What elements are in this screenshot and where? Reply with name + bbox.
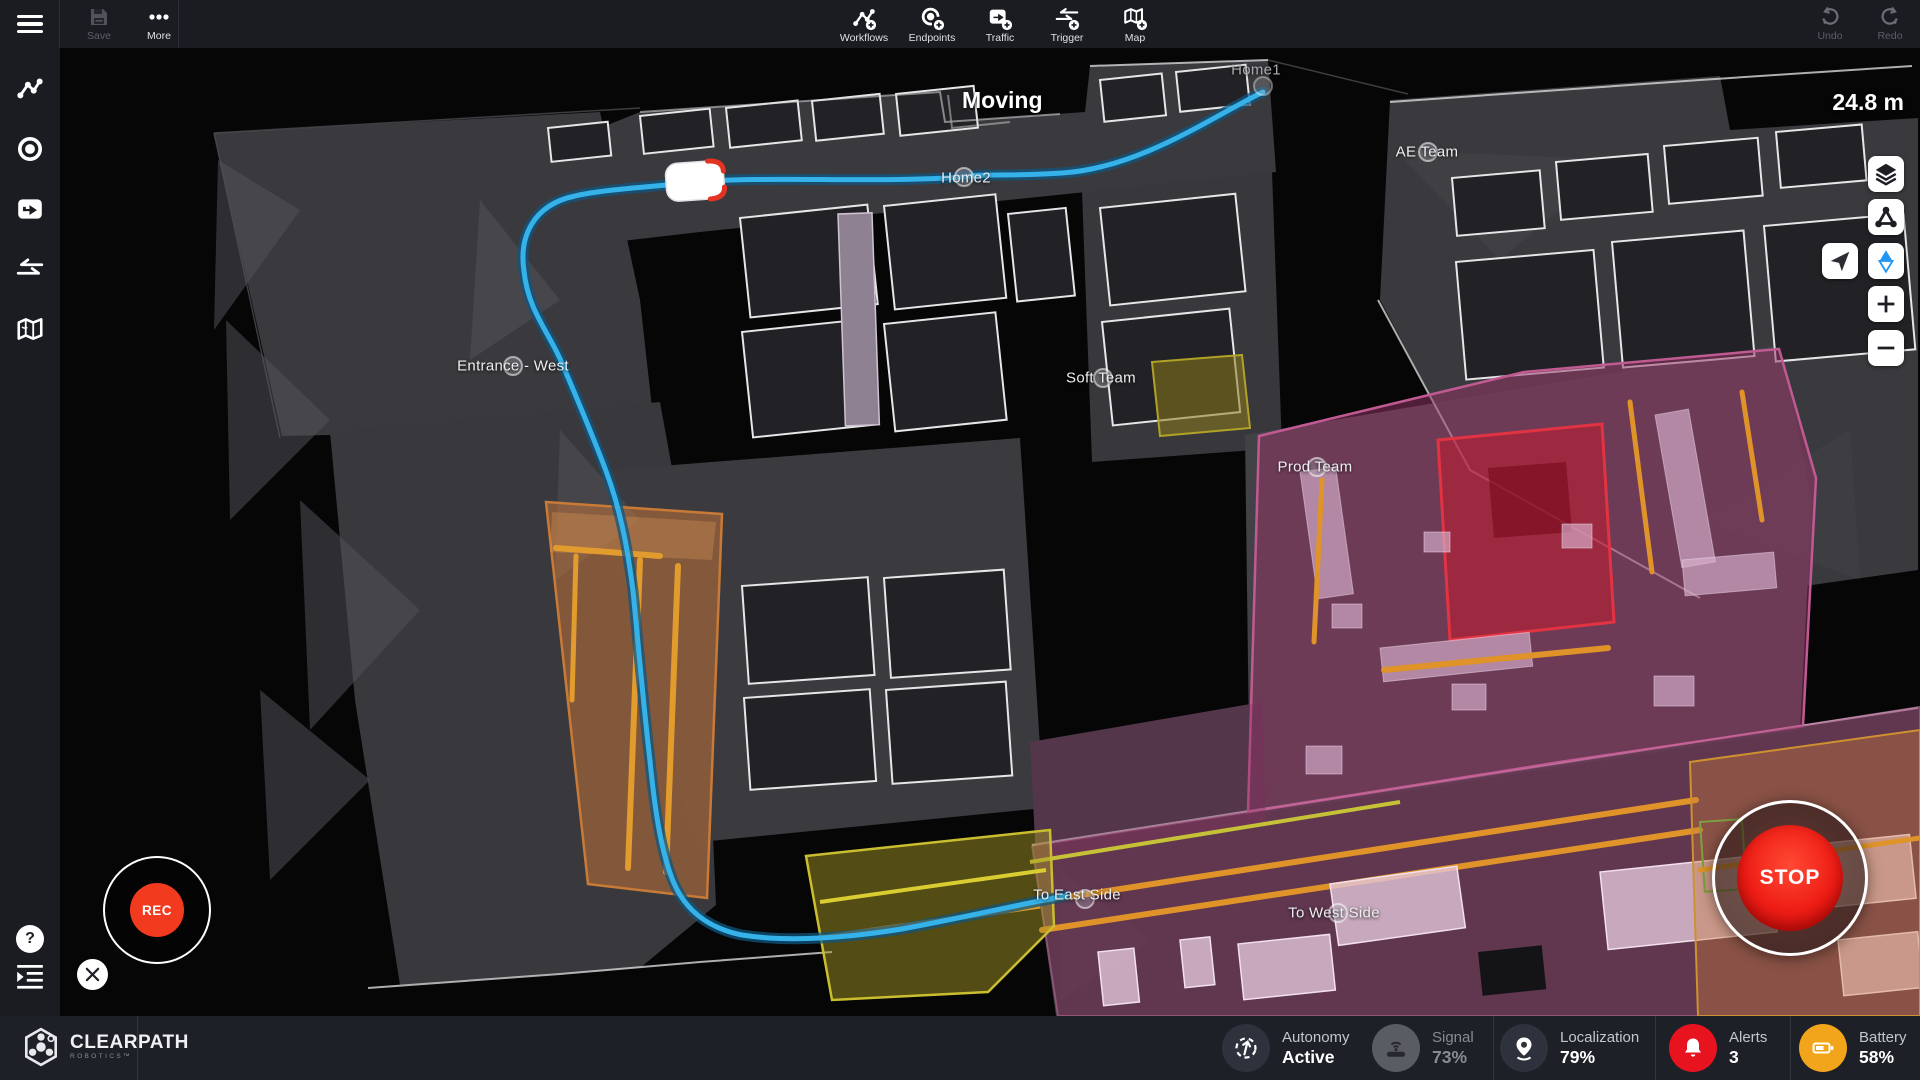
workflows-icon — [15, 74, 45, 104]
tool-button-traffic[interactable]: Traffic — [968, 3, 1032, 47]
layers-button[interactable] — [1868, 156, 1904, 192]
map-graphics — [60, 48, 1920, 1016]
battery-icon — [1799, 1024, 1847, 1072]
map-canvas[interactable] — [60, 48, 1920, 1016]
left-sidebar: ? — [0, 48, 60, 1016]
question-mark-icon: ? — [25, 930, 35, 948]
traffic-icon — [987, 5, 1013, 31]
tool-button-trigger[interactable]: Trigger — [1035, 3, 1099, 47]
statusbar-divider — [137, 1016, 138, 1080]
status-chip-battery[interactable]: Battery 58% — [1799, 1024, 1907, 1072]
redo-button[interactable]: Redo — [1858, 3, 1920, 47]
traffic-icon — [15, 194, 45, 224]
more-icon — [147, 5, 171, 29]
help-button[interactable]: ? — [16, 925, 44, 953]
trigger-icon — [15, 254, 45, 284]
minus-icon — [1873, 335, 1899, 361]
save-button[interactable]: Save — [67, 3, 131, 47]
sidebar-item-map[interactable] — [15, 314, 45, 344]
brand-subtitle: ROBOTICS™ — [70, 1052, 189, 1061]
alerts-bell-icon — [1669, 1024, 1717, 1072]
workflows-icon — [851, 5, 877, 31]
rec-label: REC — [130, 883, 184, 937]
brand-name: CLEARPATH — [70, 1033, 189, 1052]
brand-logo: CLEARPATH ROBOTICS™ — [20, 1026, 189, 1068]
status-chip-signal[interactable]: Signal 73% — [1372, 1024, 1474, 1072]
route-graph-icon — [1873, 204, 1899, 230]
log-panel-button[interactable] — [14, 961, 44, 991]
endpoints-icon — [15, 134, 45, 164]
statusbar-divider — [1790, 1016, 1791, 1080]
redo-icon — [1878, 5, 1902, 29]
zoom-in-button[interactable] — [1868, 286, 1904, 322]
save-icon — [87, 5, 111, 29]
close-button[interactable] — [77, 959, 108, 990]
toolbar-divider — [178, 0, 179, 48]
statusbar-divider — [1493, 1016, 1494, 1080]
hamburger-icon — [15, 15, 45, 34]
signal-icon — [1372, 1024, 1420, 1072]
locate-button[interactable] — [1822, 243, 1858, 279]
rec-button[interactable]: REC — [103, 856, 211, 964]
status-chip-alerts[interactable]: Alerts 3 — [1669, 1024, 1767, 1072]
status-chip-autonomy[interactable]: Autonomy Active — [1222, 1024, 1350, 1072]
sidebar-item-workflows[interactable] — [15, 74, 45, 104]
localization-pin-icon — [1500, 1024, 1548, 1072]
robot-marker — [665, 160, 726, 202]
clearpath-hexagon-icon — [20, 1026, 62, 1068]
stop-button[interactable]: STOP — [1712, 800, 1868, 956]
status-bar: CLEARPATH ROBOTICS™ Autonomy Active — [0, 1016, 1920, 1080]
status-chip-localization[interactable]: Localization 79% — [1500, 1024, 1639, 1072]
statusbar-divider — [1655, 1016, 1656, 1080]
compass-button[interactable] — [1868, 243, 1904, 279]
tool-button-map[interactable]: Map — [1103, 3, 1167, 47]
sidebar-item-endpoints[interactable] — [15, 134, 45, 164]
layers-icon — [1873, 161, 1899, 187]
map-icon — [1122, 5, 1148, 31]
tool-button-workflows[interactable]: Workflows — [832, 3, 896, 47]
map-icon — [15, 314, 45, 344]
menu-button[interactable] — [15, 13, 45, 35]
stop-label: STOP — [1737, 825, 1843, 931]
more-button[interactable]: More — [127, 3, 191, 47]
route-graph-button[interactable] — [1868, 199, 1904, 235]
undo-button[interactable]: Undo — [1798, 3, 1862, 47]
plus-icon — [1873, 291, 1899, 317]
compass-icon — [1873, 248, 1899, 274]
trigger-icon — [1054, 5, 1080, 31]
sidebar-item-trigger[interactable] — [15, 254, 45, 284]
undo-icon — [1818, 5, 1842, 29]
autonomy-icon — [1222, 1024, 1270, 1072]
app-window: Moving 24.8 m Home1 Home2 Entrance - Wes… — [0, 0, 1920, 1080]
top-toolbar: Save More Workflows Endpoints — [0, 0, 1920, 48]
tool-button-endpoints[interactable]: Endpoints — [900, 3, 964, 47]
locate-arrow-icon — [1827, 248, 1853, 274]
toolbar-divider — [59, 0, 60, 48]
close-icon — [85, 967, 100, 982]
zoom-out-button[interactable] — [1868, 330, 1904, 366]
log-list-icon — [14, 961, 46, 991]
sidebar-item-traffic[interactable] — [15, 194, 45, 224]
endpoints-icon — [919, 5, 945, 31]
